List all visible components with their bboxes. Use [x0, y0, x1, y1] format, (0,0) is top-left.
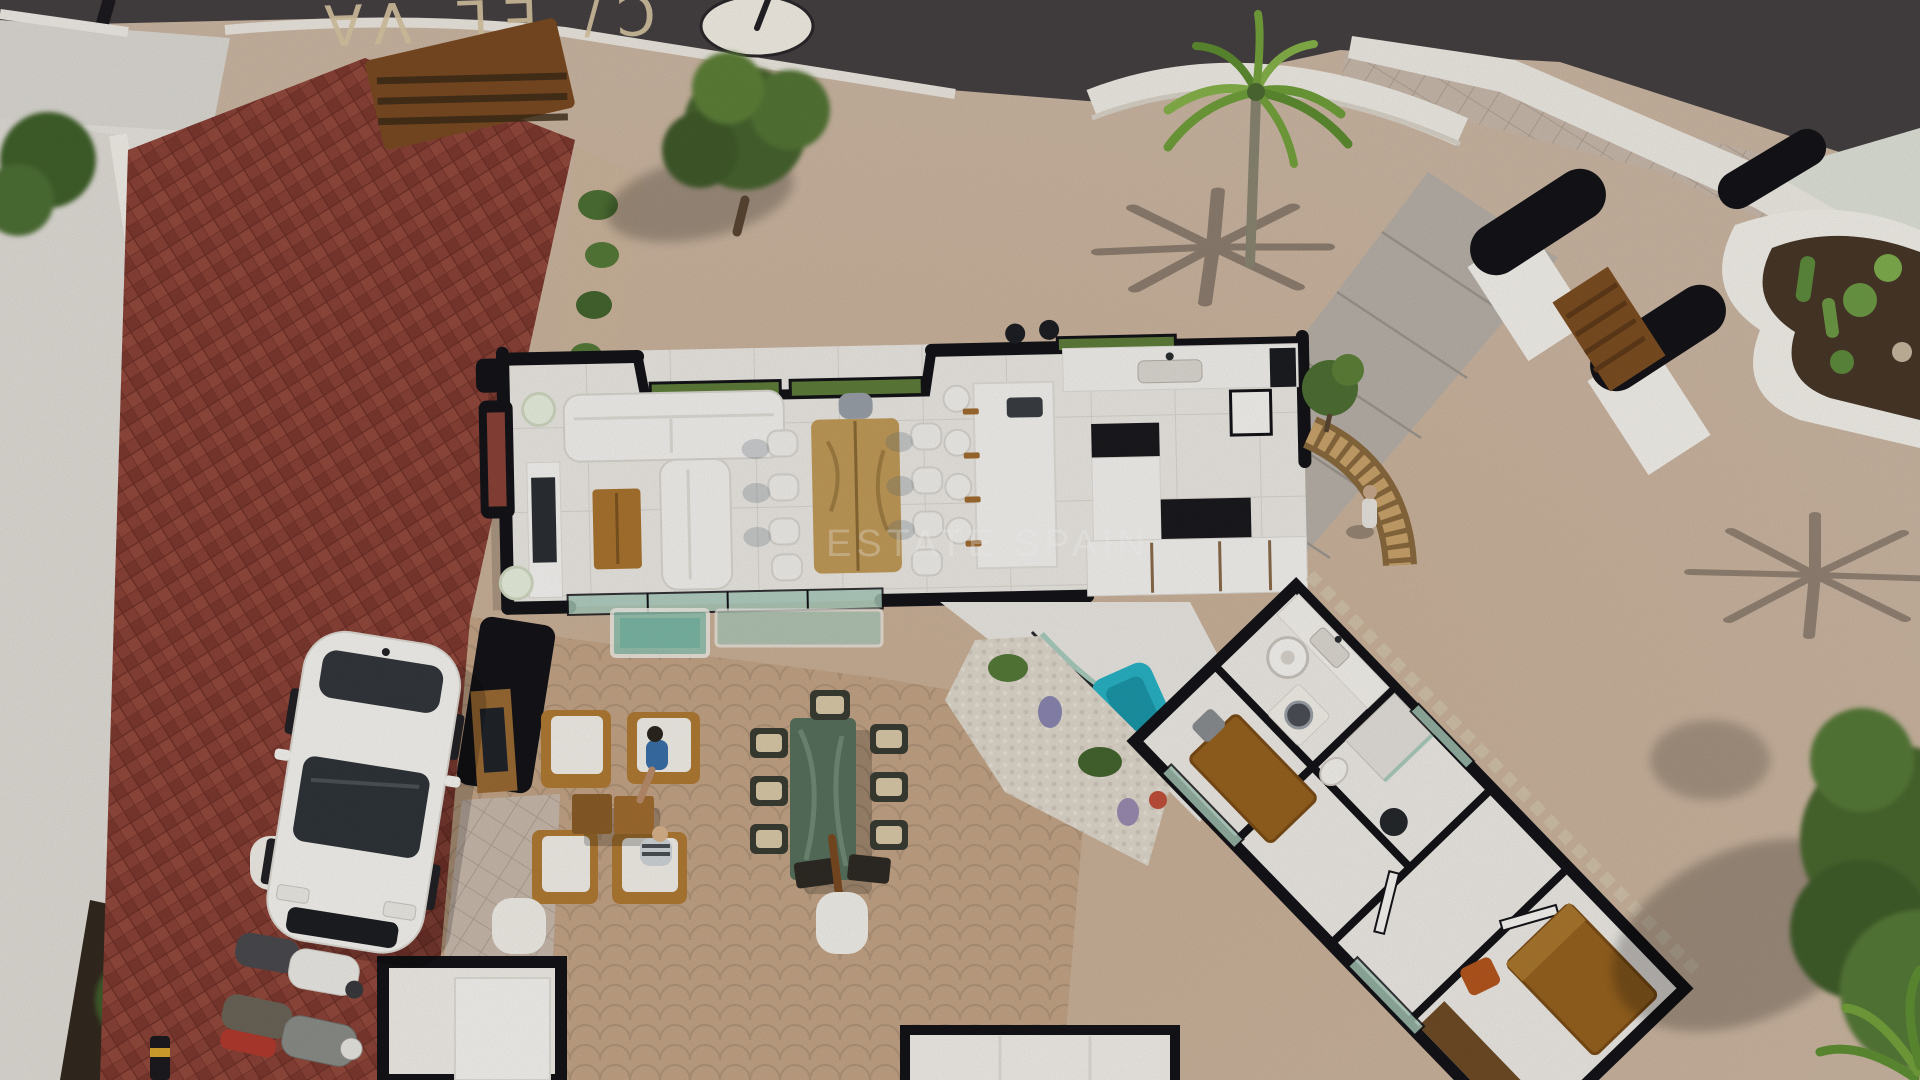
scene-svg: C/ EL VA — [0, 0, 1920, 1080]
film-grain-overlay — [0, 0, 1920, 1080]
villa-render-canvas: C/ EL VA — [0, 0, 1920, 1080]
